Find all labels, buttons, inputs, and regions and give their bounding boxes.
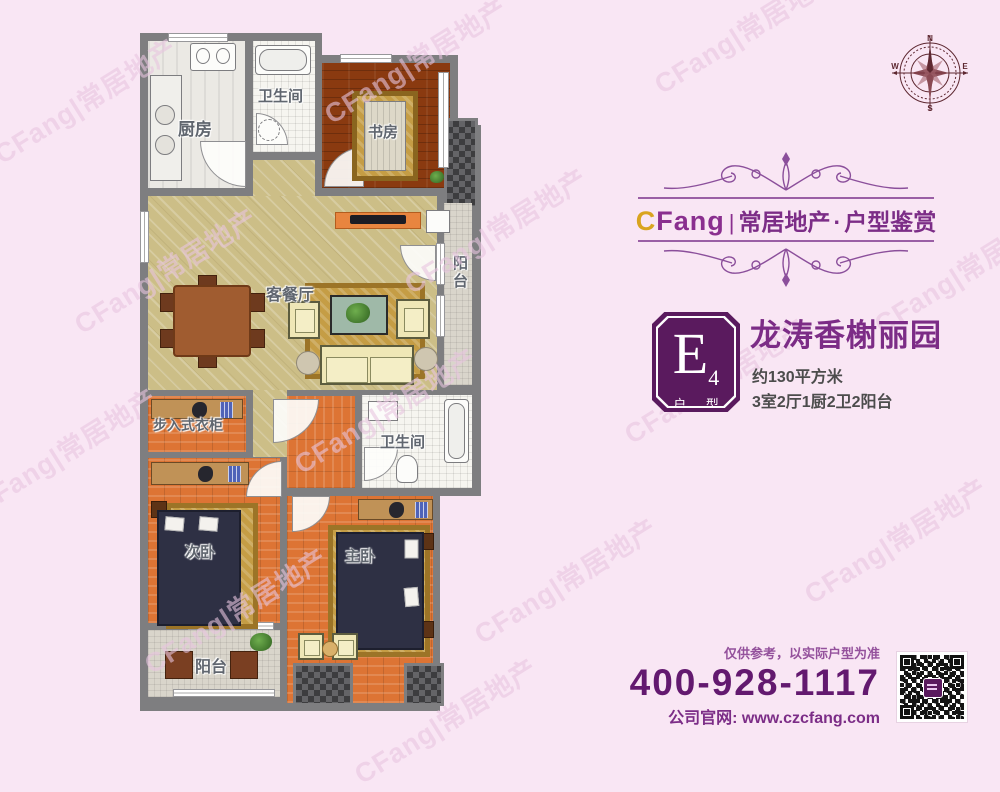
badge-letter: E — [673, 324, 708, 384]
equipment-platform-right — [444, 118, 478, 209]
washbasin-middle — [368, 401, 398, 421]
qr-finder-bl — [900, 705, 914, 719]
badge-number: 4 — [708, 365, 719, 390]
phone-number: 400-928-1117 — [580, 664, 880, 702]
armchair-right — [396, 299, 430, 339]
master-chair-1 — [298, 633, 324, 660]
website: 公司官网: www.czcfang.com — [580, 704, 880, 728]
balcony-chair-2 — [230, 651, 258, 679]
label-living-dining: 客餐厅 — [266, 281, 314, 305]
washbasin-top — [258, 119, 280, 141]
hukou-flyer: { "watermark": { "text": "CFang|常居地产" },… — [0, 0, 1000, 750]
logo-latin: Fang — [656, 206, 725, 236]
study-plant — [430, 171, 444, 183]
logo-tagline: 户型鉴赏 — [844, 209, 936, 235]
window-living-left — [140, 211, 149, 263]
balcony-chair-1 — [165, 651, 193, 679]
label-bedroom-second: 次卧 — [185, 541, 215, 562]
balcony-plant — [250, 633, 272, 651]
compass-icon: N E S W — [889, 32, 971, 114]
unit-area: 约130平方米 — [752, 363, 843, 387]
flourish-top-icon — [636, 150, 936, 196]
contact-block: 仅供参考，以实际户型为准 400-928-1117 公司官网: www.czcf… — [580, 643, 880, 728]
website-url: www.czcfang.com — [742, 710, 880, 727]
armchair-left — [288, 301, 320, 339]
label-kitchen: 厨房 — [178, 115, 212, 140]
window-study-side — [438, 72, 449, 168]
logo-dot: · — [831, 209, 845, 235]
master-small-table — [322, 641, 338, 657]
bathtub-top-inner — [259, 49, 307, 71]
side-table-left — [296, 351, 320, 375]
label-bathroom-middle: 卫生间 — [380, 431, 425, 452]
equipment-platform-bottom-left — [293, 663, 353, 706]
bathtub-middle-inner — [448, 403, 465, 459]
project-title: 龙涛香榭丽园 — [750, 310, 942, 355]
cabinet-small — [426, 210, 450, 233]
dining-chair — [250, 293, 265, 312]
label-bathroom-top: 卫生间 — [258, 85, 303, 106]
toilet — [396, 455, 418, 483]
bedroom-second-bed — [157, 510, 241, 626]
qr-center-logo — [923, 678, 943, 698]
compass-e: E — [962, 62, 968, 71]
kitchen-sink-basin-1 — [196, 48, 210, 64]
hall-under-bath — [253, 160, 315, 196]
label-bedroom-master: 主卧 — [345, 545, 375, 566]
brand-header: CFang|常居地产·户型鉴赏 — [630, 150, 942, 289]
dining-chair — [250, 329, 265, 348]
kitchen-burner-1 — [155, 105, 175, 125]
brand-logo: CFang|常居地产·户型鉴赏 — [630, 200, 942, 239]
label-balcony-bottom: 阳台 — [195, 653, 227, 677]
logo-company-name: 常居地产 — [739, 209, 831, 235]
tv — [350, 215, 406, 224]
side-table-right — [414, 347, 438, 371]
logo-separator: | — [725, 210, 739, 235]
logo-letter-c: C — [636, 206, 657, 236]
bedroom-master-wardrobe — [358, 499, 433, 520]
label-study: 书房 — [368, 121, 398, 142]
equipment-platform-bottom-right — [404, 663, 444, 706]
compass-s: S — [927, 104, 933, 113]
brand-divider-bottom — [638, 240, 934, 242]
label-balcony-right: 阳台 — [449, 255, 470, 291]
unit-type-badge: E4 户 型 — [652, 312, 740, 412]
notch-top-right — [458, 33, 481, 125]
sofa — [320, 345, 414, 385]
brand-divider-top — [638, 197, 934, 199]
window-balcony-right-2 — [436, 295, 445, 337]
coffee-table-plant — [346, 303, 370, 323]
compass-n: N — [927, 34, 933, 43]
kitchen-burner-2 — [155, 135, 175, 155]
disclaimer-text: 仅供参考，以实际户型为准 — [580, 643, 880, 662]
notch-bottom-right — [440, 496, 481, 711]
flourish-bottom-icon — [636, 243, 936, 289]
unit-rooms-summary: 3室2厅1厨2卫2阳台 — [752, 388, 893, 412]
label-walk-in-closet: 步入式衣柜 — [153, 415, 223, 435]
window-kitchen — [168, 33, 228, 42]
badge-inner: E4 户 型 — [658, 318, 734, 406]
qr-code — [896, 651, 968, 723]
watermark: CFang|常居地产 — [796, 467, 994, 611]
window-study — [340, 54, 392, 63]
kitchen-sink-basin-2 — [216, 48, 230, 64]
bedroom-second-wardrobe — [151, 462, 249, 485]
dining-table — [173, 285, 251, 357]
watermark: CFang|常居地产 — [466, 507, 664, 651]
qr-finder-tl — [900, 655, 914, 669]
floorplan: 厨房 卫生间 书房 客餐厅 阳台 步入式衣柜 卫生间 次卧 主卧 阳台 — [140, 33, 481, 711]
qr-finder-tr — [950, 655, 964, 669]
railing-balcony-bottom — [173, 689, 275, 697]
window-balcony-right-1 — [436, 243, 445, 285]
compass-w: W — [891, 62, 899, 71]
watermark: CFang|常居地产 — [646, 0, 844, 102]
website-label: 公司官网: — [668, 710, 742, 727]
